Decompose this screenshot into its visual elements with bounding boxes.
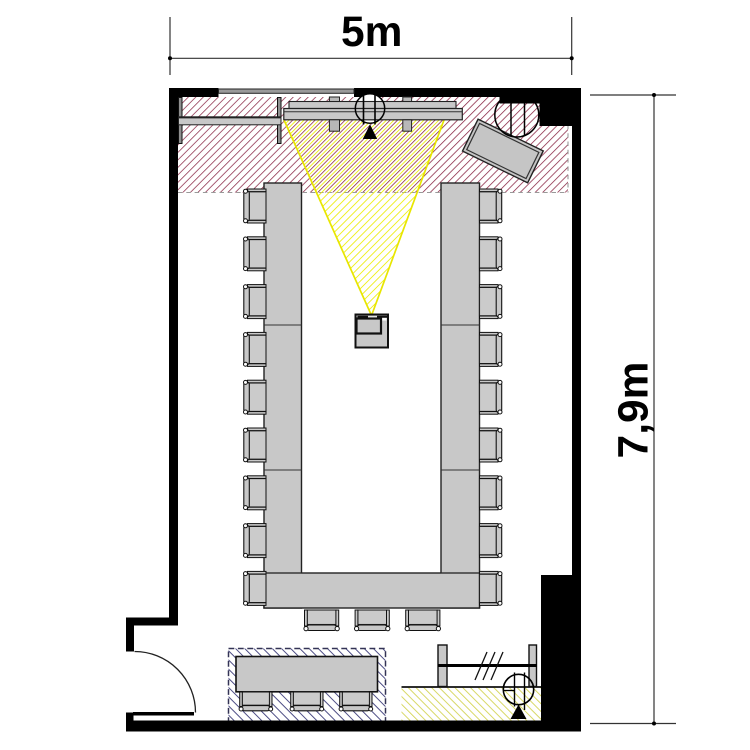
svg-text:7,9m: 7,9m <box>611 362 658 459</box>
svg-text:5m: 5m <box>341 9 402 56</box>
